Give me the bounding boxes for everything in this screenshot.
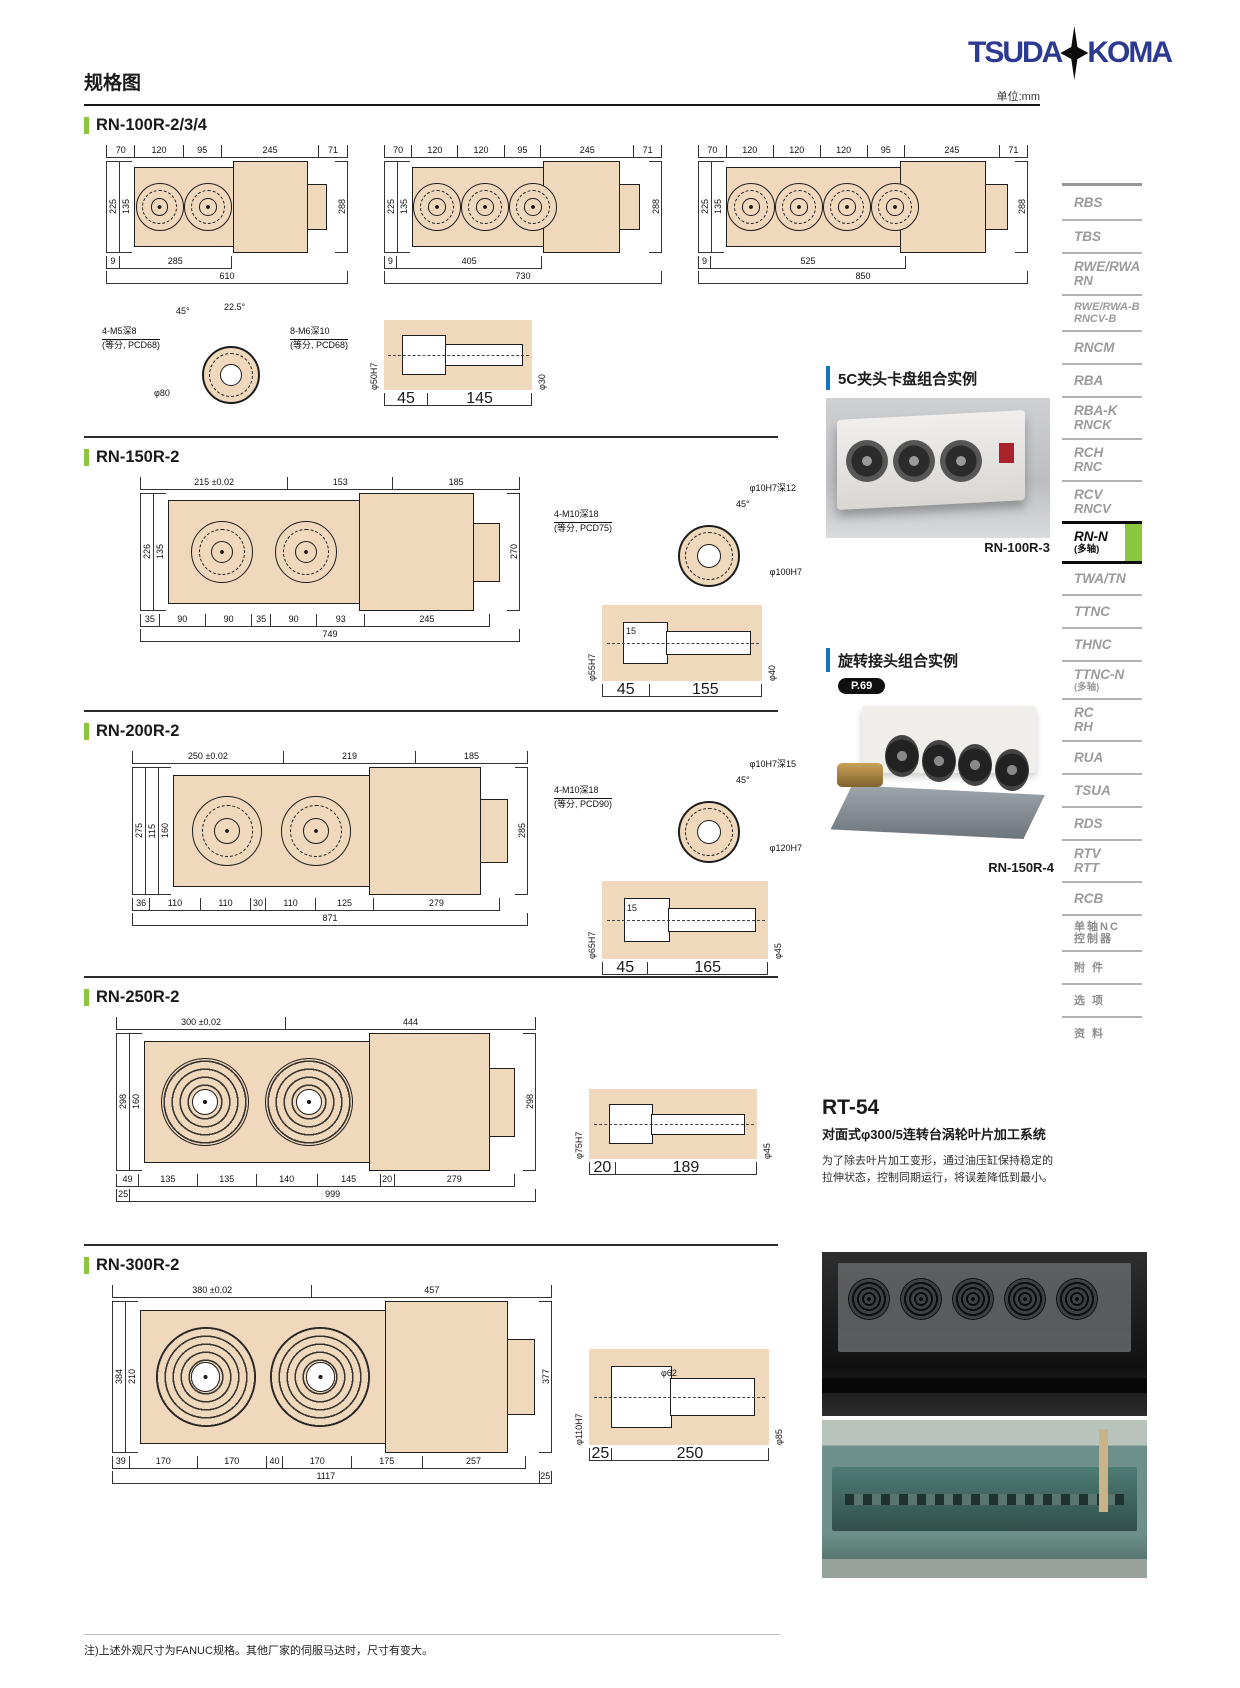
sidebar-item[interactable]: TSUA (1062, 773, 1142, 806)
bore-spec-label: φ10H7深15 (750, 759, 796, 771)
sidebar-item-label: RBS (1074, 195, 1138, 210)
left-dims: 298160 (116, 1033, 142, 1171)
bore-label: φ110H7 (574, 1349, 584, 1445)
sidebar-item-sublabel: RN (1074, 274, 1138, 289)
dim-label: 40 (266, 1456, 283, 1469)
sidebar-item-label: TWA/TN (1074, 571, 1138, 586)
dim-label: 71 (633, 145, 662, 158)
dim-label: 110 (265, 898, 316, 911)
dim-label: 279 (394, 1174, 515, 1187)
rn200-detail-column: 4-M10深18(等分, PCD90) φ10H7深15 45° φ120H7 … (554, 751, 804, 975)
top-dims: 380 ±0.02457 (112, 1285, 552, 1298)
section-divider (84, 976, 778, 978)
sidebar-item[interactable]: THNC (1062, 627, 1142, 660)
left-dims: 225135 (698, 161, 724, 253)
dim-label: 135 (138, 1174, 197, 1187)
sidebar-item[interactable]: RC RH (1062, 698, 1142, 740)
dim-label: 226 (140, 493, 153, 611)
rt54-title: RT-54 (822, 1096, 1054, 1120)
rotary-table-circle (265, 1058, 353, 1146)
dim-label: 45 (602, 962, 647, 975)
dim-label: 25 (116, 1189, 129, 1202)
dim-label: 120 (134, 145, 182, 158)
flange-circle (678, 525, 740, 587)
dim-label: 245 (364, 614, 489, 627)
top-dims: 250 ±0.02219185 (132, 751, 528, 764)
sidebar-item-label: THNC (1074, 637, 1138, 652)
rotary-table-circle (275, 521, 337, 583)
total-dims: 610 (106, 271, 348, 284)
dim-label: 380 ±0.02 (112, 1285, 311, 1298)
rotary-table-circle (281, 796, 351, 866)
sidebar-item[interactable]: RCH RNC (1062, 438, 1142, 480)
sidebar-item-label: RDS (1074, 816, 1138, 831)
header-rule (84, 104, 1040, 106)
dim-label: 70 (698, 145, 726, 158)
sidebar-item-label: TTNC (1074, 604, 1138, 619)
dim-label: 250 ±0.02 (132, 751, 283, 764)
sidebar-item-label: RN-N (1074, 529, 1138, 544)
photo-workshop (822, 1420, 1147, 1578)
rotary-table-circle (775, 183, 823, 231)
sidebar-item-label: RCH (1074, 445, 1138, 460)
dim-label: 245 (221, 145, 318, 158)
total-dims: 111725 (112, 1471, 552, 1484)
angle-label: 22.5° (224, 302, 245, 314)
dim-label: 298 (523, 1033, 536, 1171)
dim-label: 71 (318, 145, 348, 158)
dim-label: 245 (904, 145, 999, 158)
sidebar-item[interactable]: RNCM (1062, 330, 1142, 363)
sidebar-item-label: RUA (1074, 750, 1138, 765)
machine-outline (724, 161, 1015, 253)
dim-label: 225 (106, 161, 119, 253)
photo-rn150r4 (826, 700, 1054, 858)
shaft-detail: φ55H7 15 φ40 45 155 (602, 605, 762, 699)
sidebar-item-label: RNCM (1074, 340, 1138, 355)
dim-label: 125 (315, 898, 372, 911)
section-title: RN-250R-2 (84, 988, 1042, 1007)
bottom-dims: 9525 (698, 256, 906, 269)
bolt-spec-label: 4-M10深18(等分, PCD75) (554, 509, 612, 534)
footnote: 注)上述外观尺寸为FANUC规格。其他厂家的伺服马达时，尺寸有变大。 (84, 1642, 433, 1658)
flange-circle (678, 801, 740, 863)
dim-label: 730 (384, 271, 662, 284)
bottom-dims: 3917017040170175257 (112, 1456, 526, 1469)
footnote-rule (84, 1634, 780, 1635)
photo-caption-rn100r3: RN-100R-3 (826, 540, 1050, 555)
left-dims: 225135 (384, 161, 410, 253)
dim-label: 39 (112, 1456, 129, 1469)
rotary-table-circle (192, 796, 262, 866)
dim-label: 20 (589, 1162, 615, 1175)
sidebar-item[interactable]: RCB (1062, 881, 1142, 914)
dim-label: 93 (316, 614, 364, 627)
photo-rt54-machine (822, 1252, 1147, 1416)
dim-label: 45 (602, 684, 649, 697)
sidebar-item-label: 选 项 (1074, 995, 1138, 1007)
dim-label: 71 (999, 145, 1028, 158)
drawing-rn200r-2: 250 ±0.02219185 275115160 285 (132, 751, 528, 928)
drawing-rn100r-3: 701201209524571 225135 288 (384, 145, 662, 286)
dim-label: 140 (256, 1174, 317, 1187)
right-dim: 288 (649, 161, 662, 253)
end-dia-label: φ30 (537, 320, 547, 390)
sidebar-item-sublabel: RNC (1074, 460, 1138, 475)
dim-label: 210 (125, 1301, 138, 1453)
dim-label: 35 (251, 614, 270, 627)
bottom-dims: 4913513514014520279 (116, 1174, 515, 1187)
dim-label: 9 (698, 256, 710, 269)
dim-label: 9 (106, 256, 119, 269)
flange-detail: 4-M5深8(等分, PCD68) 45° 22.5° 8-M6深10(等分, … (102, 306, 354, 412)
rotary-table-circle (413, 183, 461, 231)
end-dia-label: φ85 (774, 1349, 784, 1445)
angle-label: 45° (736, 775, 750, 787)
dim-label: 225 (698, 161, 711, 253)
dim-label: 49 (116, 1174, 138, 1187)
dim-label: 120 (820, 145, 867, 158)
logo-text-left: TSUDA (968, 36, 1061, 70)
rotary-table-circle (823, 183, 871, 231)
sidebar-item[interactable]: RWE/RWA-B RNCV-B (1062, 294, 1142, 331)
sidebar-item[interactable]: RUA (1062, 740, 1142, 773)
dim-label: 95 (867, 145, 904, 158)
shaft-section: φ55H7 15 φ40 (602, 605, 762, 681)
right-dim: 298 (523, 1033, 536, 1171)
machine-outline (138, 1301, 539, 1453)
machine-outline (142, 1033, 523, 1171)
dim-label: 871 (132, 913, 528, 926)
dim-label: 20 (380, 1174, 394, 1187)
sidebar-item[interactable]: TBS (1062, 219, 1142, 252)
dim-label: 185 (392, 477, 520, 490)
dim-label: 1117 (112, 1471, 539, 1484)
dim-label: 300 ±0.02 (116, 1017, 285, 1030)
dim-label: 298 (116, 1033, 129, 1171)
right-dim: 270 (507, 493, 520, 611)
sidebar-item-label: RTV (1074, 846, 1138, 861)
dim-label: 135 (119, 161, 132, 253)
bore-label: φ50H7 (369, 320, 379, 390)
sidebar-item[interactable]: 附 件 (1062, 950, 1142, 983)
page-link-badge[interactable]: P.69 (838, 678, 885, 694)
end-dia-label: φ40 (767, 605, 777, 681)
dim-label: 457 (311, 1285, 552, 1298)
rn150-detail-column: 4-M10深18(等分, PCD75) φ10H7深12 45° φ100H7 … (554, 477, 804, 697)
flange-detail: 4-M10深18(等分, PCD75) φ10H7深12 45° φ100H7 (554, 483, 804, 595)
sidebar-item-sublabel: RNCK (1074, 418, 1138, 433)
shaft-detail: φ110H7 φ62 φ85 25 250 (589, 1349, 769, 1463)
dim-label: 145 (427, 393, 532, 406)
rotary-table-circle (191, 521, 253, 583)
shaft-detail: φ50H7 φ30 45 145 (384, 320, 532, 408)
end-dia-label: φ45 (762, 1089, 772, 1159)
shaft-dims: 45 165 (602, 962, 768, 975)
sidebar-item[interactable]: TTNC-N (多轴) (1062, 660, 1142, 699)
rotary-table-circle (461, 183, 509, 231)
dim-label: 170 (197, 1456, 266, 1469)
sidebar-item-label: RWE/RWA-B (1074, 301, 1138, 313)
dim-label: 288 (649, 161, 662, 253)
dim-label: 245 (540, 145, 633, 158)
dim-label: 215 ±0.02 (140, 477, 287, 490)
machine-outline (166, 493, 507, 611)
dim-label: 384 (112, 1301, 125, 1453)
sidebar-item-note: (多轴) (1074, 544, 1138, 555)
diameter-label: φ80 (154, 388, 170, 400)
dim-label: 219 (283, 751, 415, 764)
dim-label: 90 (205, 614, 251, 627)
sidebar-item[interactable]: 资 料 (1062, 1016, 1142, 1049)
dim-label: 153 (287, 477, 392, 490)
dim-label: 175 (351, 1456, 422, 1469)
shaft-dims: 45 155 (602, 684, 762, 697)
total-dims: 25999 (116, 1189, 536, 1202)
bore-label: φ55H7 (587, 605, 597, 681)
rt54-subtitle: 对面式φ300/5连转台涡轮叶片加工系统 (822, 1126, 1054, 1144)
top-dims: 701201209524571 (384, 145, 662, 158)
dim-label: 185 (415, 751, 528, 764)
sidebar-item[interactable]: 单轴NC 控制器 (1062, 914, 1142, 951)
dim-label: 45 (384, 393, 427, 406)
bottom-dims: 359090359093245 (140, 614, 490, 627)
dim-label: 95 (504, 145, 541, 158)
dim-label: 110 (200, 898, 251, 911)
dim-label: 95 (183, 145, 221, 158)
dim-label: 90 (159, 614, 205, 627)
rt54-body: 为了除去叶片加工变形，通过油压缸保持稳定的拉伸状态，控制同期运行，将误差降低到最… (822, 1153, 1054, 1187)
dim-label: 35 (140, 614, 159, 627)
shaft-section: φ50H7 φ30 (384, 320, 532, 390)
catalog-page: TSUDA KOMA 规格图 单位:mm RN-100R-2/3/4 70120… (0, 0, 1240, 1688)
sidebar-item[interactable]: RWE/RWA RN (1062, 252, 1142, 294)
sidebar-item-label: TTNC-N (1074, 667, 1138, 682)
sidebar-item[interactable]: 选 项 (1062, 983, 1142, 1016)
dim-label: 170 (129, 1456, 198, 1469)
top-dims: 215 ±0.02153185 (140, 477, 520, 490)
sidebar-item[interactable]: RDS (1062, 806, 1142, 839)
dim-label: 749 (140, 629, 520, 642)
rotary-table-circle (136, 183, 184, 231)
product-nav: RBS TBS RWE/RWA RN RWE/RWA-B RNCV-B (1062, 183, 1142, 1049)
dim-label: 250 (611, 1448, 769, 1461)
rotary-table-circle (727, 183, 775, 231)
sidebar-item-label: RBA (1074, 373, 1138, 388)
end-dia-label: φ45 (773, 881, 783, 959)
dim-label: 999 (129, 1189, 536, 1202)
dim-label: 25 (539, 1471, 552, 1484)
sidebar-item-sublabel: RNCV (1074, 502, 1138, 517)
dim-label: 288 (1015, 161, 1028, 253)
angle-label: 45° (736, 499, 750, 511)
dim-label: 135 (397, 161, 410, 253)
sidebar-item[interactable]: RBS (1062, 186, 1142, 219)
dim-label: 25 (589, 1448, 611, 1461)
dim-label: 70 (384, 145, 411, 158)
machine-outline (171, 767, 515, 895)
shaft-dims: 45 145 (384, 393, 532, 406)
dim-label: 288 (335, 161, 348, 253)
dim-label: 135 (153, 493, 166, 611)
dim-label: 120 (726, 145, 773, 158)
sidebar-item[interactable]: RCV RNCV (1062, 480, 1142, 522)
bore-spec-label: φ10H7深12 (750, 483, 796, 495)
right-dim: 377 (539, 1301, 552, 1453)
shaft-section: φ65H7 15 φ45 (602, 881, 768, 959)
dim-label: 145 (317, 1174, 380, 1187)
left-dims: 275115160 (132, 767, 171, 895)
dim-label: 160 (158, 767, 171, 895)
dim-label: 525 (710, 256, 906, 269)
section-divider (84, 1244, 778, 1246)
top-dims: 300 ±0.02444 (116, 1017, 536, 1030)
dim-label: 135 (711, 161, 724, 253)
right-dim: 288 (1015, 161, 1028, 253)
bore-label: φ65H7 (587, 881, 597, 959)
rt54-block: RT-54 对面式φ300/5连转台涡轮叶片加工系统 为了除去叶片加工变形，通过… (822, 1096, 1054, 1187)
section-divider (84, 710, 778, 712)
dim-label: 444 (285, 1017, 536, 1030)
dim-label: 120 (457, 145, 503, 158)
sidebar-item-label: 附 件 (1074, 962, 1138, 974)
mid-dim-label: φ62 (661, 1368, 677, 1378)
dim-label: 270 (507, 493, 520, 611)
dim-label: 257 (422, 1456, 526, 1469)
sidebar-item-label: RC (1074, 705, 1138, 720)
dim-label: 120 (773, 145, 820, 158)
photo-rn100r3 (826, 398, 1050, 538)
sidebar-item-label: RCV (1074, 487, 1138, 502)
total-dims: 730 (384, 271, 662, 284)
dim-label: 275 (132, 767, 145, 895)
shaft-section: φ110H7 φ62 φ85 (589, 1349, 769, 1445)
right-dim: 285 (515, 767, 528, 895)
right-dim: 288 (335, 161, 348, 253)
angle-label: 45° (176, 306, 190, 318)
section-divider (84, 436, 778, 438)
bottom-dims: 3611011030110125279 (132, 898, 500, 911)
shaft-section: φ75H7 φ45 (589, 1089, 757, 1159)
dim-label: 279 (373, 898, 501, 911)
sidebar-item[interactable]: RN-N (多轴) (1062, 521, 1142, 561)
rotary-table-circle (184, 183, 232, 231)
drawing-rn300r-2: 380 ±0.02457 384210 377 3 (112, 1285, 552, 1486)
diameter-label: φ120H7 (770, 843, 802, 855)
sidebar-item-note: (多轴) (1074, 682, 1138, 693)
dim-label: 285 (119, 256, 232, 269)
dim-label: 165 (647, 962, 768, 975)
left-dims: 225135 (106, 161, 132, 253)
bolt-spec-label: 8-M6深10(等分, PCD68) (290, 326, 348, 351)
sidebar-item-label: 单轴NC (1074, 921, 1138, 933)
bottom-dims: 9285 (106, 256, 232, 269)
dim-label: 90 (270, 614, 316, 627)
dim-label: 225 (384, 161, 397, 253)
dim-label: 610 (106, 271, 348, 284)
sidebar-item-label: RCB (1074, 891, 1138, 906)
sidebar-item-sublabel: 控制器 (1074, 933, 1138, 945)
sidebar-item-sublabel: RNCV-B (1074, 313, 1138, 325)
drawing-rn150r-2: 215 ±0.02153185 226135 270 (140, 477, 520, 644)
dim-label: 120 (411, 145, 457, 158)
sidebar-item[interactable]: RBA-K RNCK (1062, 396, 1142, 438)
dim-label: 160 (129, 1033, 142, 1171)
dim-label: 285 (515, 767, 528, 895)
dim-label: 377 (539, 1301, 552, 1453)
dim-label: 115 (145, 767, 158, 895)
top-dims: 701209524571 (106, 145, 348, 158)
sidebar-item-label: TSUA (1074, 783, 1138, 798)
tsudakoma-logo: TSUDA KOMA (968, 26, 1171, 80)
rotary-table-circle (871, 183, 919, 231)
sidebar-item[interactable]: RTV RTT (1062, 839, 1142, 881)
dim-label: 155 (649, 684, 762, 697)
dim-label: 9 (384, 256, 396, 269)
dim-label: 189 (615, 1162, 757, 1175)
dim-label: 405 (396, 256, 543, 269)
total-dims: 749 (140, 629, 520, 642)
example1-heading: 5C夹头卡盘组合实例 (826, 366, 1050, 390)
left-dims: 384210 (112, 1301, 138, 1453)
shaft-detail: φ75H7 φ45 20 189 (589, 1089, 757, 1177)
sidebar-item[interactable]: RBA (1062, 363, 1142, 396)
rotary-table-circle (161, 1058, 249, 1146)
machine-outline (132, 161, 335, 253)
sidebar-item[interactable]: TTNC (1062, 594, 1142, 627)
shaft-dims: 20 189 (589, 1162, 757, 1175)
logo-text-right: KOMA (1087, 36, 1171, 70)
bolt-spec-label: 4-M10深18(等分, PCD90) (554, 785, 612, 810)
dim-label: 36 (132, 898, 149, 911)
total-dims: 871 (132, 913, 528, 926)
left-dims: 226135 (140, 493, 166, 611)
shaft-dims: 25 250 (589, 1448, 769, 1461)
bottom-dims: 9405 (384, 256, 542, 269)
dim-label: 70 (106, 145, 134, 158)
drawing-rn100r-2: 701209524571 225135 288 (106, 145, 348, 286)
diameter-label: φ100H7 (770, 567, 802, 579)
section-title: RN-100R-2/3/4 (84, 116, 1042, 135)
top-dims: 701201201209524571 (698, 145, 1028, 158)
sidebar-item-label: RWE/RWA (1074, 259, 1138, 274)
flange-detail: 4-M10深18(等分, PCD90) φ10H7深15 45° φ120H7 (554, 759, 804, 871)
logo-diamond-icon (1060, 26, 1088, 80)
machine-outline (410, 161, 649, 253)
sidebar-item-sublabel: RTT (1074, 861, 1138, 876)
rotary-table-circle (509, 183, 557, 231)
bore-label: φ75H7 (574, 1089, 584, 1159)
sidebar-item-sublabel: RH (1074, 720, 1138, 735)
dim-label: 850 (698, 271, 1028, 284)
rotary-table-circle (270, 1327, 370, 1427)
sidebar-item-label: TBS (1074, 229, 1138, 244)
drawing-rn100r-4: 701201201209524571 225135 288 (698, 145, 1028, 286)
drawing-rn250r-2: 300 ±0.02444 298160 298 4 (116, 1017, 536, 1204)
total-dims: 850 (698, 271, 1028, 284)
sidebar-item-label: 资 料 (1074, 1028, 1138, 1040)
dim-label: 30 (250, 898, 265, 911)
sidebar-item[interactable]: TWA/TN (1062, 561, 1142, 594)
rotary-table-circle (156, 1327, 256, 1427)
photo-caption-rn150r4: RN-150R-4 (826, 860, 1054, 875)
dim-label: 170 (282, 1456, 351, 1469)
dim-label: 135 (197, 1174, 256, 1187)
unit-label: 单位:mm (84, 88, 1040, 104)
flange-circle (202, 346, 260, 404)
shaft-detail: φ65H7 15 φ45 45 165 (602, 881, 768, 977)
dim-label: 110 (149, 898, 200, 911)
